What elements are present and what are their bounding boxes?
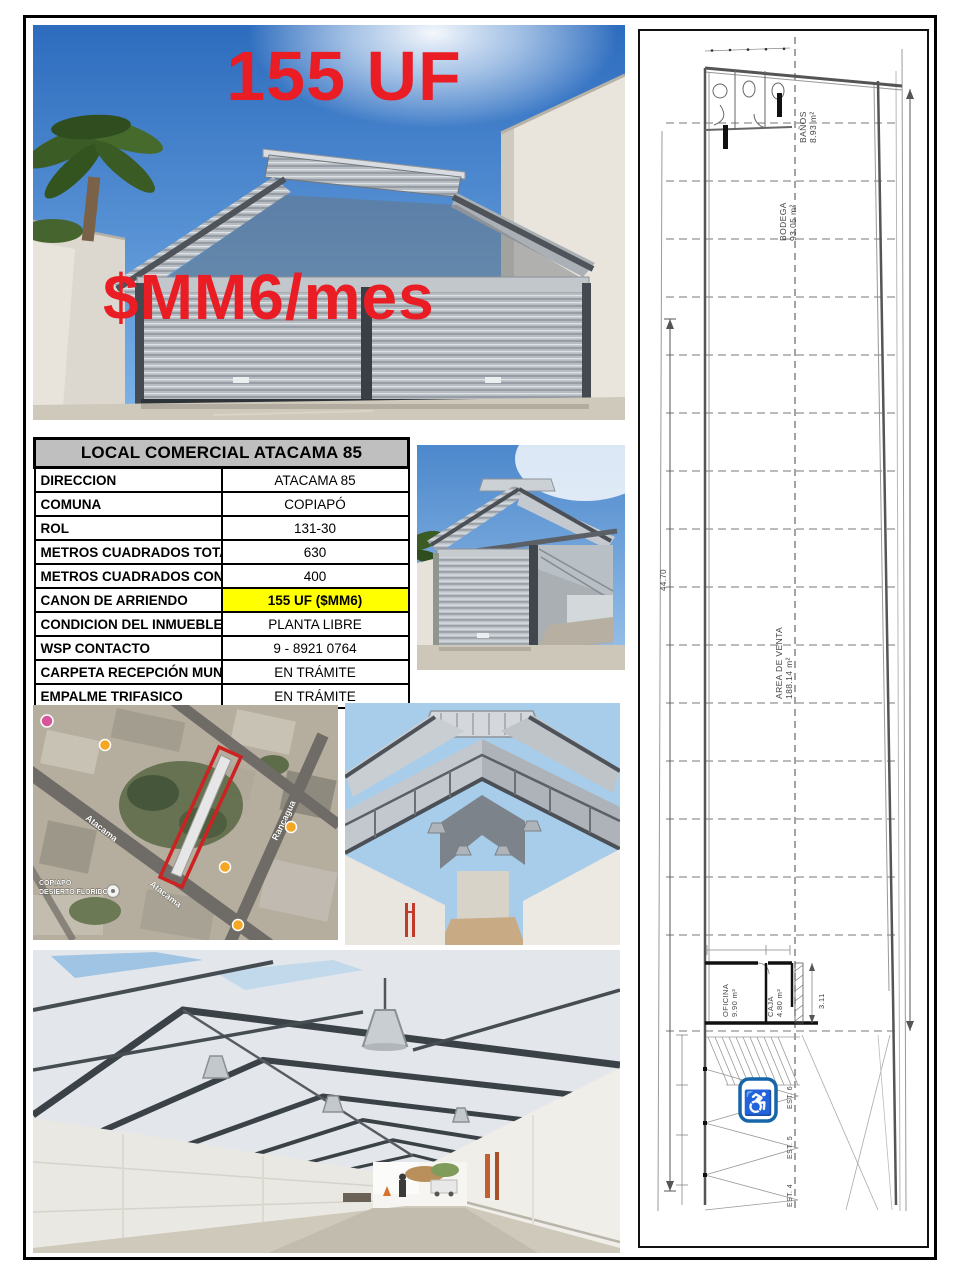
flyer-page: 155 UF $MM6/mes LOCAL COMERCIAL ATACAMA … — [0, 0, 954, 1273]
page-border — [23, 15, 937, 1260]
